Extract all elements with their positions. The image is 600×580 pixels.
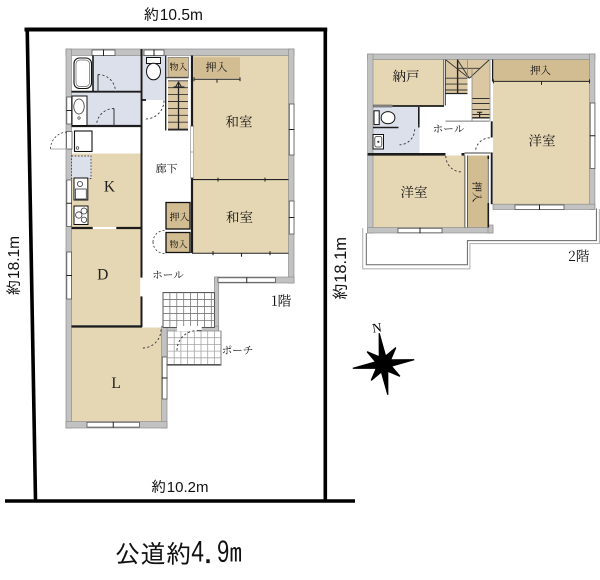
- svg-text:10.2m: 10.2m: [167, 479, 209, 496]
- svg-text:K: K: [104, 179, 116, 196]
- svg-text:D: D: [97, 267, 108, 284]
- svg-text:10.5m: 10.5m: [160, 7, 203, 24]
- svg-text:18.1m: 18.1m: [332, 237, 350, 283]
- svg-text:L: L: [111, 375, 120, 392]
- svg-text:18.1m: 18.1m: [6, 236, 23, 279]
